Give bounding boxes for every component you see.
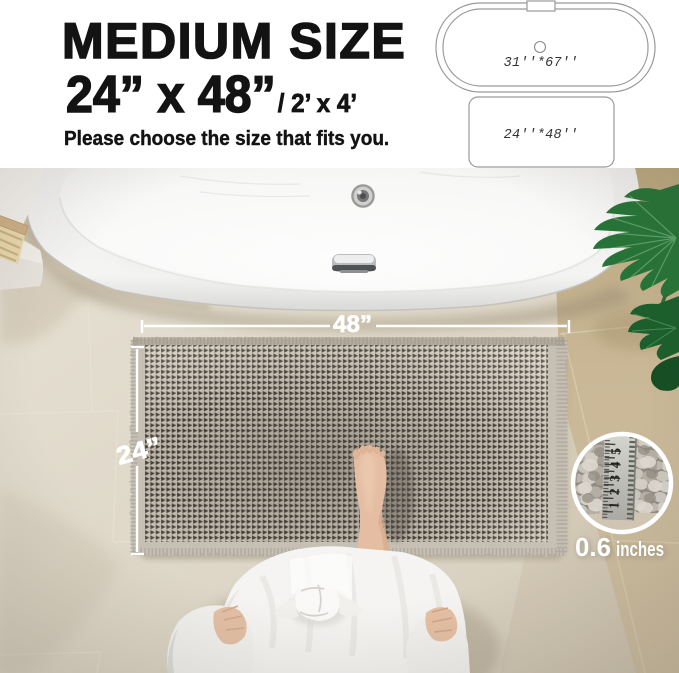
svg-text:31''*67'': 31''*67'' (504, 56, 579, 71)
svg-text:1: 1 (606, 501, 621, 509)
svg-text:3: 3 (607, 474, 622, 482)
svg-text:2: 2 (607, 488, 622, 496)
svg-text:24''*48'': 24''*48'' (504, 128, 579, 143)
svg-text:4: 4 (608, 461, 623, 469)
svg-text:48”: 48” (333, 311, 372, 338)
svg-text:5: 5 (608, 447, 623, 455)
